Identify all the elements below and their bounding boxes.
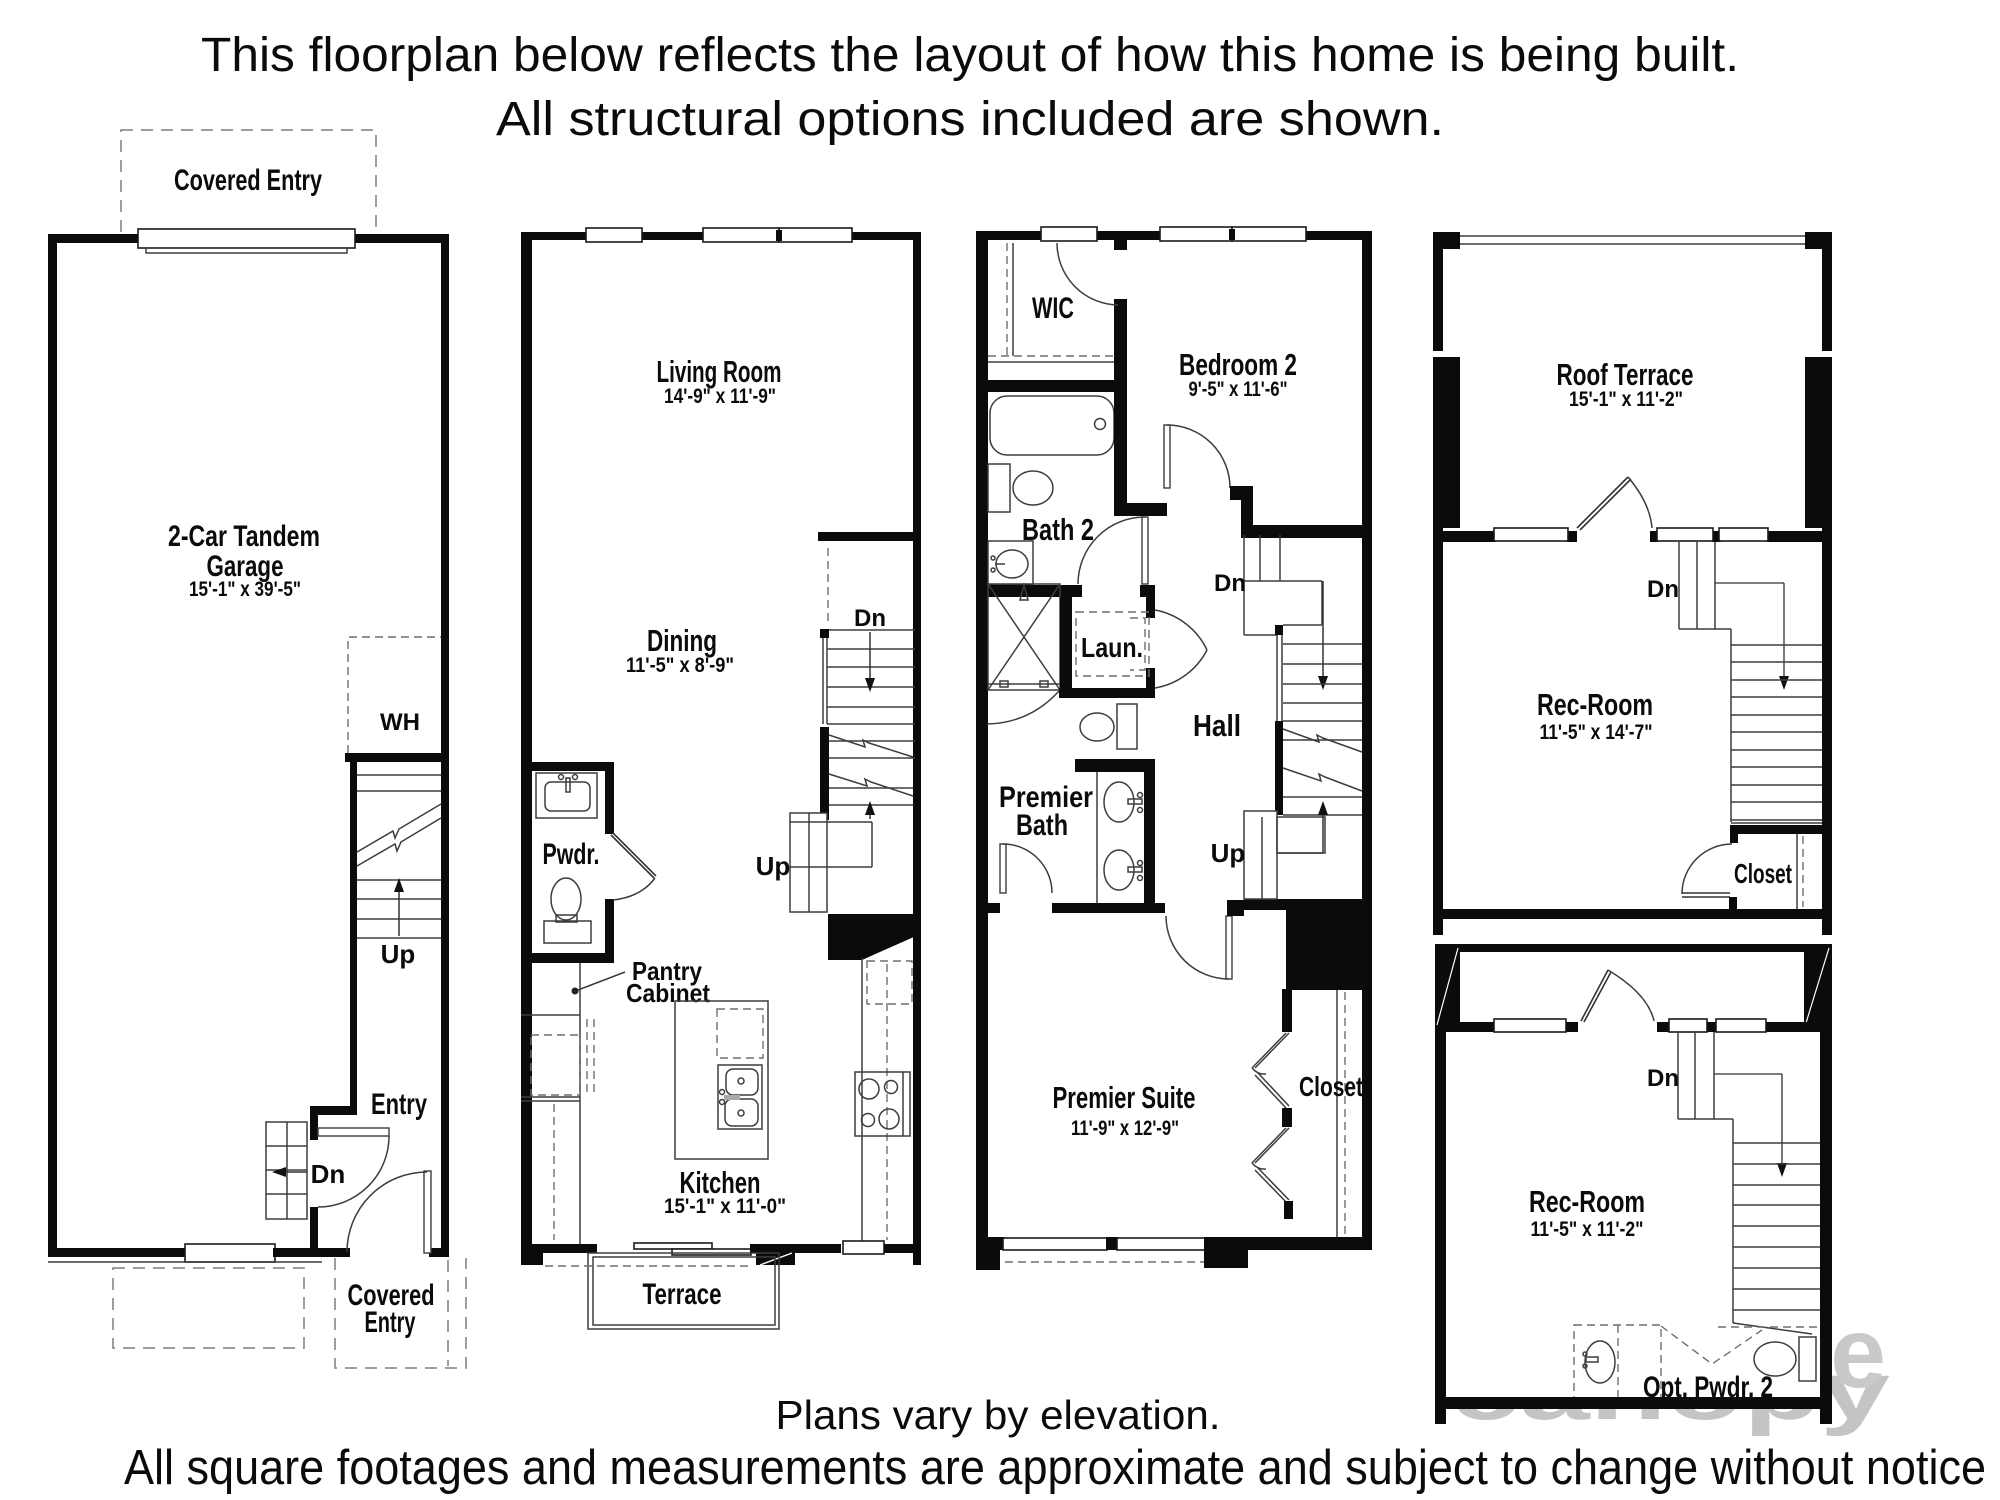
svg-text:Closet: Closet	[1299, 1071, 1363, 1102]
svg-text:11'-5" x 8'-9": 11'-5" x 8'-9"	[626, 654, 734, 677]
svg-text:Roof Terrace: Roof Terrace	[1557, 357, 1694, 392]
svg-text:WH: WH	[380, 709, 420, 736]
svg-text:Hall: Hall	[1193, 708, 1241, 743]
svg-text:Entry: Entry	[371, 1088, 427, 1121]
svg-text:Closet: Closet	[1734, 858, 1792, 889]
svg-text:Rec-Room: Rec-Room	[1529, 1184, 1645, 1219]
svg-text:11'-5" x 11'-2": 11'-5" x 11'-2"	[1531, 1218, 1644, 1241]
svg-text:Living Room: Living Room	[657, 354, 782, 389]
svg-text:Plans vary by elevation.: Plans vary by elevation.	[776, 1392, 1221, 1438]
svg-text:9'-5" x 11'-6": 9'-5" x 11'-6"	[1189, 378, 1288, 401]
svg-text:Dn: Dn	[854, 605, 886, 632]
svg-text:Dn: Dn	[1647, 1065, 1679, 1092]
svg-text:Cabinet: Cabinet	[626, 978, 710, 1008]
svg-text:11'-5" x 14'-7": 11'-5" x 14'-7"	[1540, 721, 1653, 744]
svg-text:Bath: Bath	[1016, 809, 1068, 842]
svg-text:Dn: Dn	[1647, 576, 1679, 603]
svg-text:Laun.: Laun.	[1081, 632, 1143, 663]
svg-text:Pwdr.: Pwdr.	[543, 838, 600, 871]
svg-text:All structural options include: All structural options included are show…	[496, 93, 1444, 146]
svg-text:Up: Up	[381, 939, 416, 969]
svg-text:Dn: Dn	[1214, 570, 1246, 597]
svg-text:Dining: Dining	[647, 623, 717, 658]
svg-text:WIC: WIC	[1032, 292, 1074, 325]
svg-text:Rec-Room: Rec-Room	[1537, 687, 1653, 722]
svg-text:Covered Entry: Covered Entry	[174, 164, 322, 197]
svg-text:15'-1" x 11'-0": 15'-1" x 11'-0"	[664, 1195, 786, 1218]
svg-text:Up: Up	[1211, 838, 1246, 868]
svg-text:Bedroom 2: Bedroom 2	[1179, 347, 1297, 382]
svg-text:15'-1" x 11'-2": 15'-1" x 11'-2"	[1569, 388, 1683, 411]
svg-text:Dn: Dn	[311, 1159, 346, 1189]
svg-text:e: e	[1830, 1297, 1886, 1409]
svg-text:This floorplan below reflects: This floorplan below reflects the layout…	[201, 29, 1739, 82]
svg-text:Up: Up	[756, 851, 791, 881]
svg-text:2-Car Tandem: 2-Car Tandem	[168, 520, 320, 553]
svg-text:14'-9" x 11'-9": 14'-9" x 11'-9"	[664, 385, 776, 408]
svg-text:Entry: Entry	[365, 1306, 416, 1339]
svg-text:11'-9" x 12'-9": 11'-9" x 12'-9"	[1071, 1117, 1179, 1140]
svg-text:Premier Suite: Premier Suite	[1053, 1080, 1196, 1115]
svg-text:All square footages and measur: All square footages and measurements are…	[124, 1441, 1986, 1495]
svg-text:Terrace: Terrace	[643, 1278, 722, 1311]
svg-text:15'-1" x 39'-5": 15'-1" x 39'-5"	[189, 578, 301, 601]
